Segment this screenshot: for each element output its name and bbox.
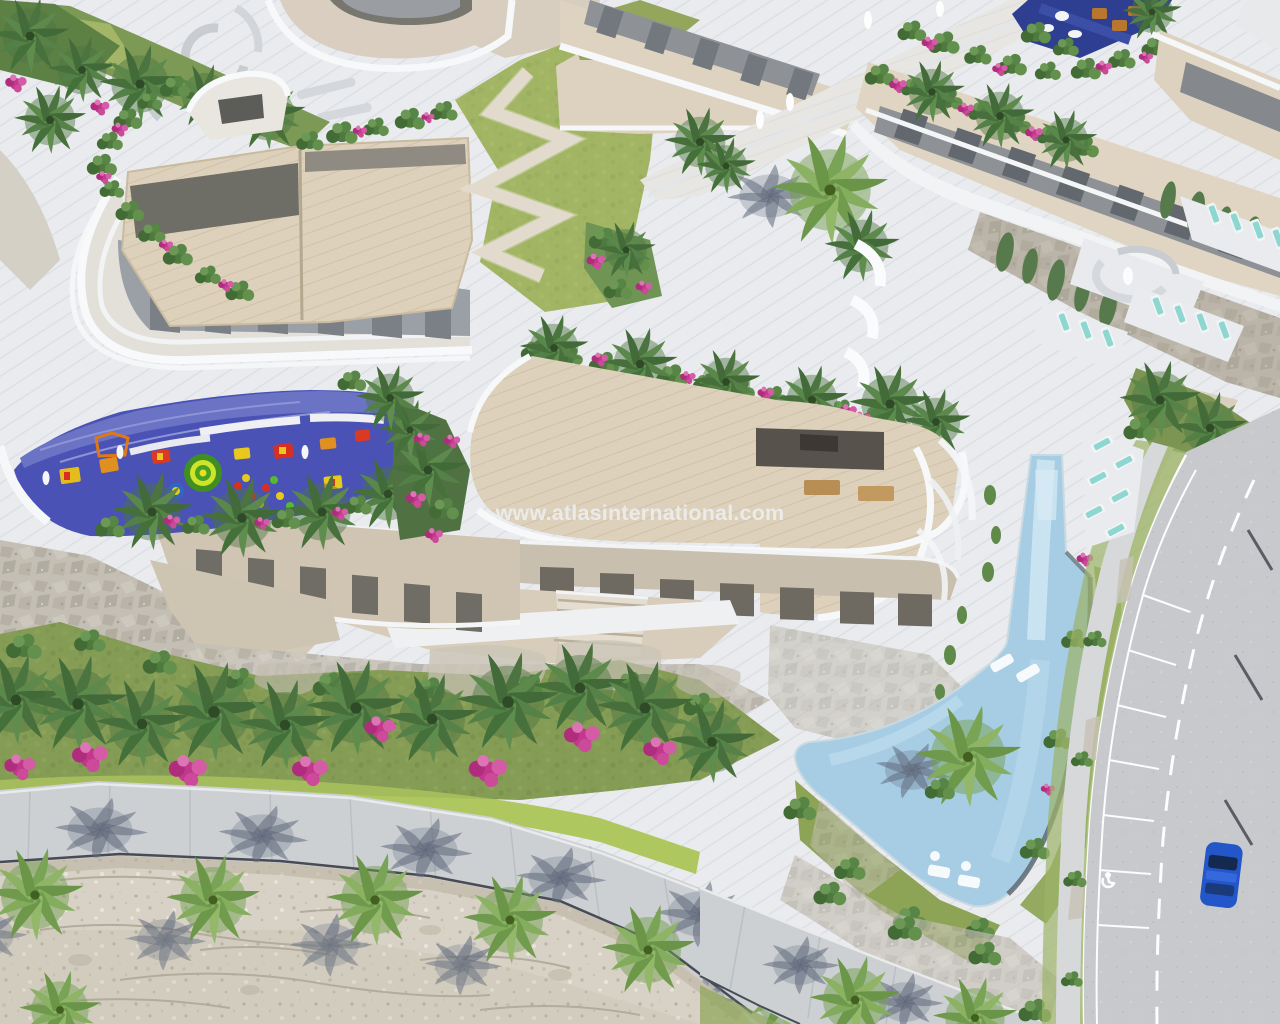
svg-text:www.atlasinternational.com: www.atlasinternational.com	[495, 501, 785, 525]
